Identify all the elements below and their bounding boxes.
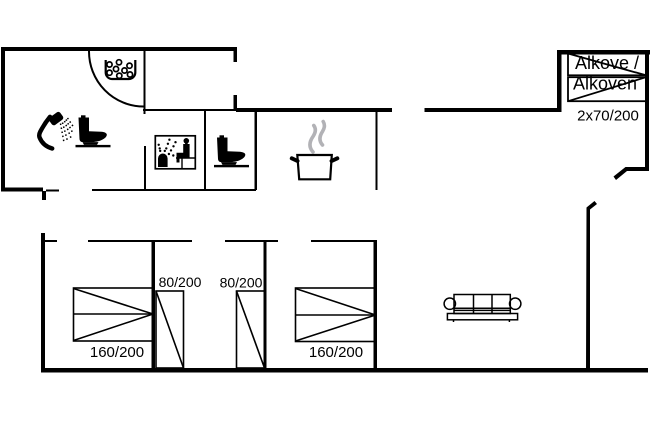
svg-text:Alkoven: Alkoven bbox=[573, 74, 637, 94]
svg-text:Alkove /: Alkove / bbox=[575, 53, 639, 73]
svg-text:2x70/200: 2x70/200 bbox=[577, 108, 639, 125]
svg-text:160/200: 160/200 bbox=[90, 344, 144, 361]
svg-text:80/200: 80/200 bbox=[159, 274, 202, 290]
svg-text:160/200: 160/200 bbox=[309, 344, 363, 361]
svg-text:80/200: 80/200 bbox=[220, 275, 263, 291]
